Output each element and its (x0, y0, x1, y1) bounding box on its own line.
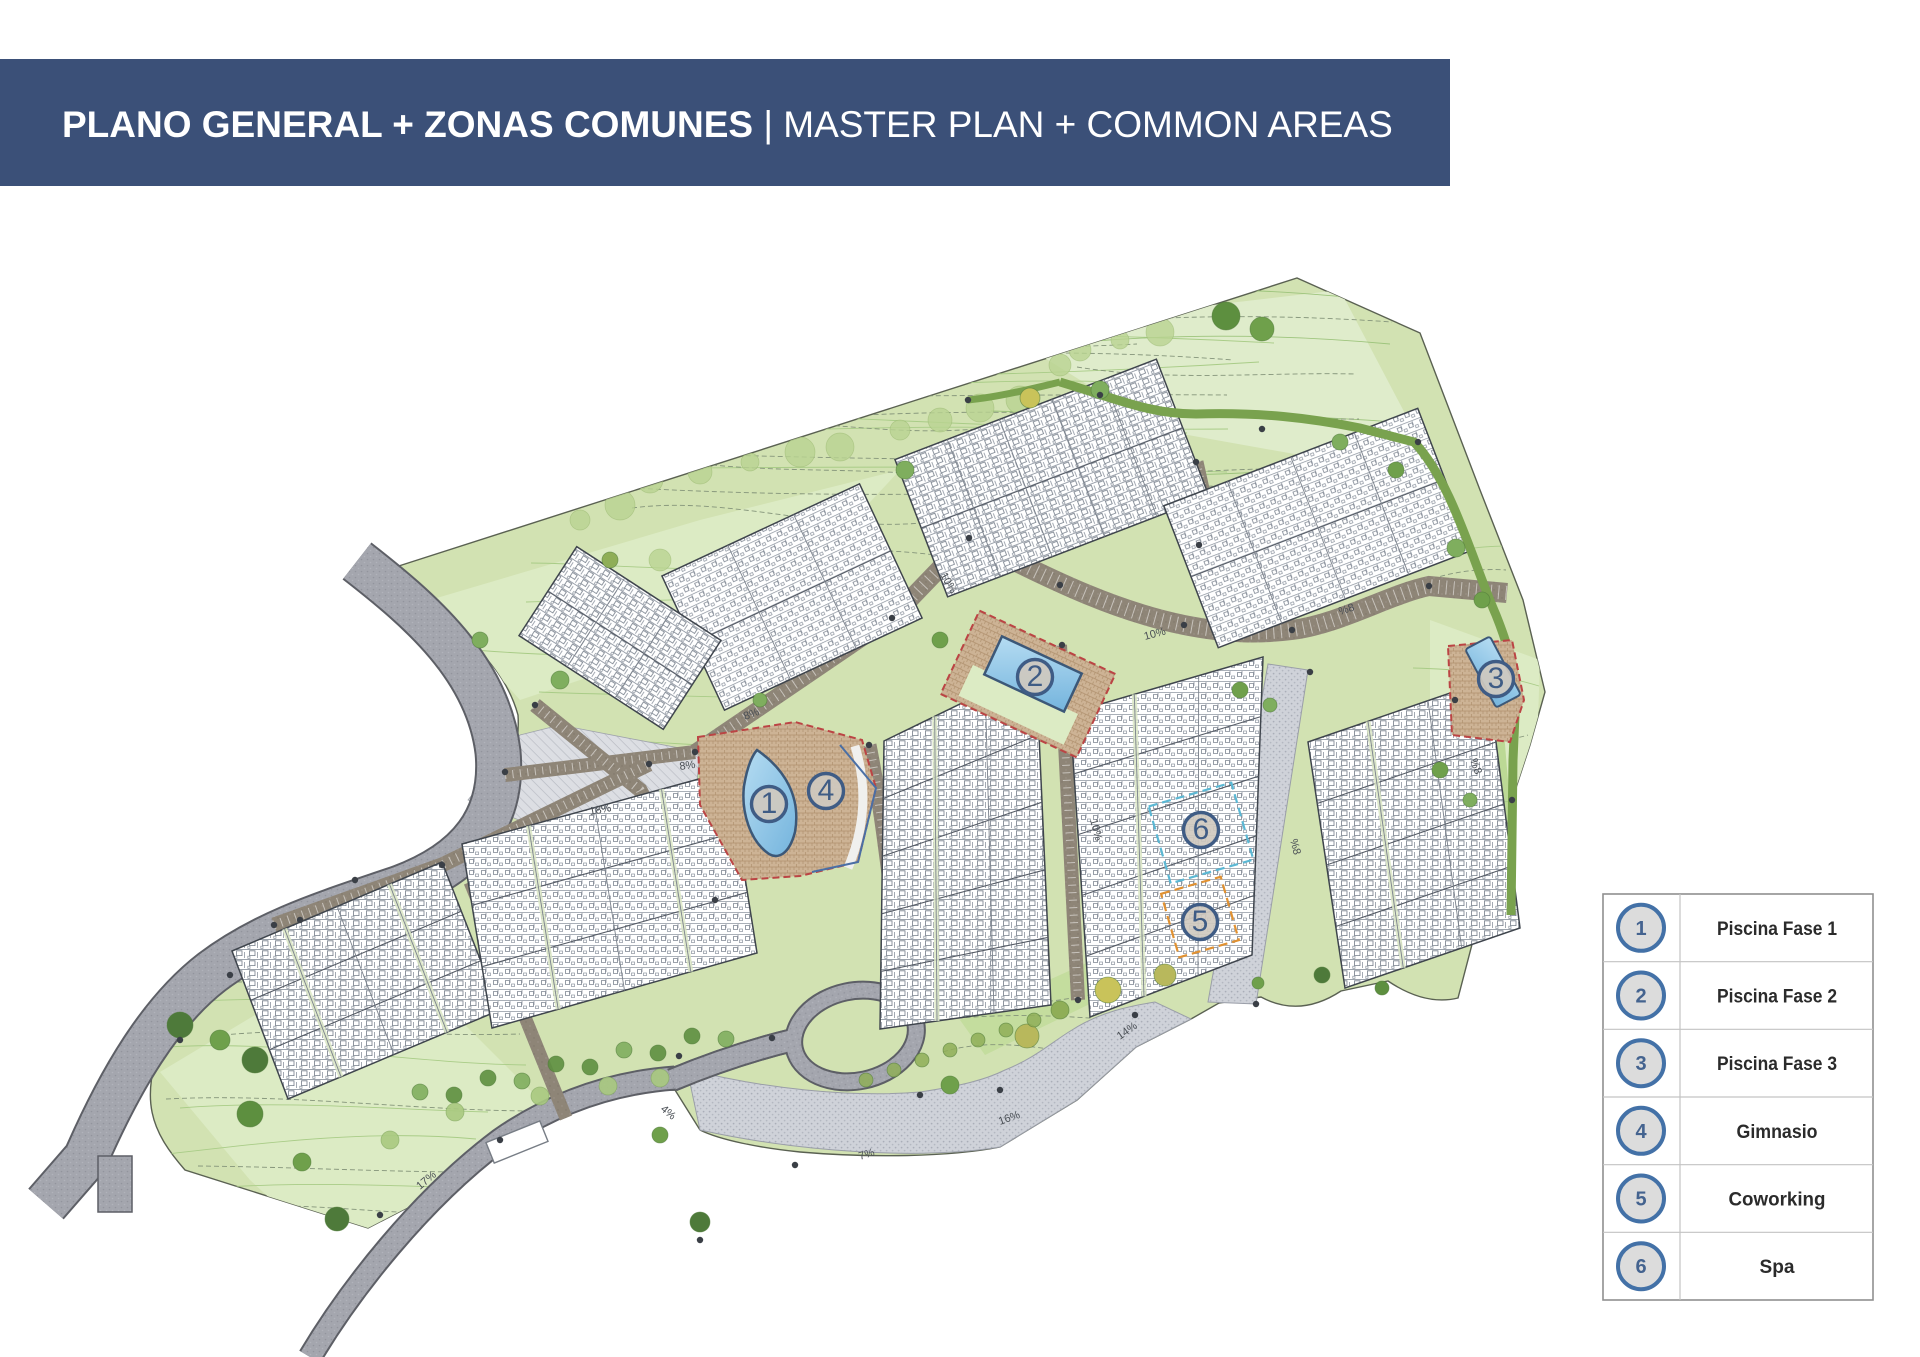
svg-text:Piscina Fase 1: Piscina Fase 1 (1717, 919, 1837, 940)
svg-text:PLANO GENERAL + ZONAS COMUNES: PLANO GENERAL + ZONAS COMUNES | MASTER P… (62, 104, 1393, 145)
svg-text:8%: 8% (679, 759, 697, 773)
svg-text:6: 6 (1635, 1256, 1646, 1278)
svg-text:Piscina Fase 3: Piscina Fase 3 (1717, 1054, 1837, 1075)
svg-text:5: 5 (1635, 1189, 1646, 1211)
svg-text:1: 1 (761, 787, 778, 820)
svg-text:Coworking: Coworking (1729, 1190, 1826, 1211)
svg-text:3: 3 (1488, 662, 1505, 695)
svg-text:3: 3 (1635, 1053, 1646, 1075)
svg-text:5: 5 (1192, 905, 1209, 938)
svg-text:2: 2 (1635, 986, 1646, 1008)
svg-text:2: 2 (1027, 660, 1044, 693)
svg-text:4: 4 (1635, 1121, 1647, 1143)
svg-text:Gimnasio: Gimnasio (1737, 1122, 1818, 1143)
svg-text:Spa: Spa (1760, 1257, 1795, 1278)
svg-text:1: 1 (1635, 918, 1646, 940)
svg-text:6: 6 (1193, 813, 1210, 846)
svg-text:4: 4 (818, 774, 835, 807)
svg-text:Piscina Fase 2: Piscina Fase 2 (1717, 987, 1837, 1008)
